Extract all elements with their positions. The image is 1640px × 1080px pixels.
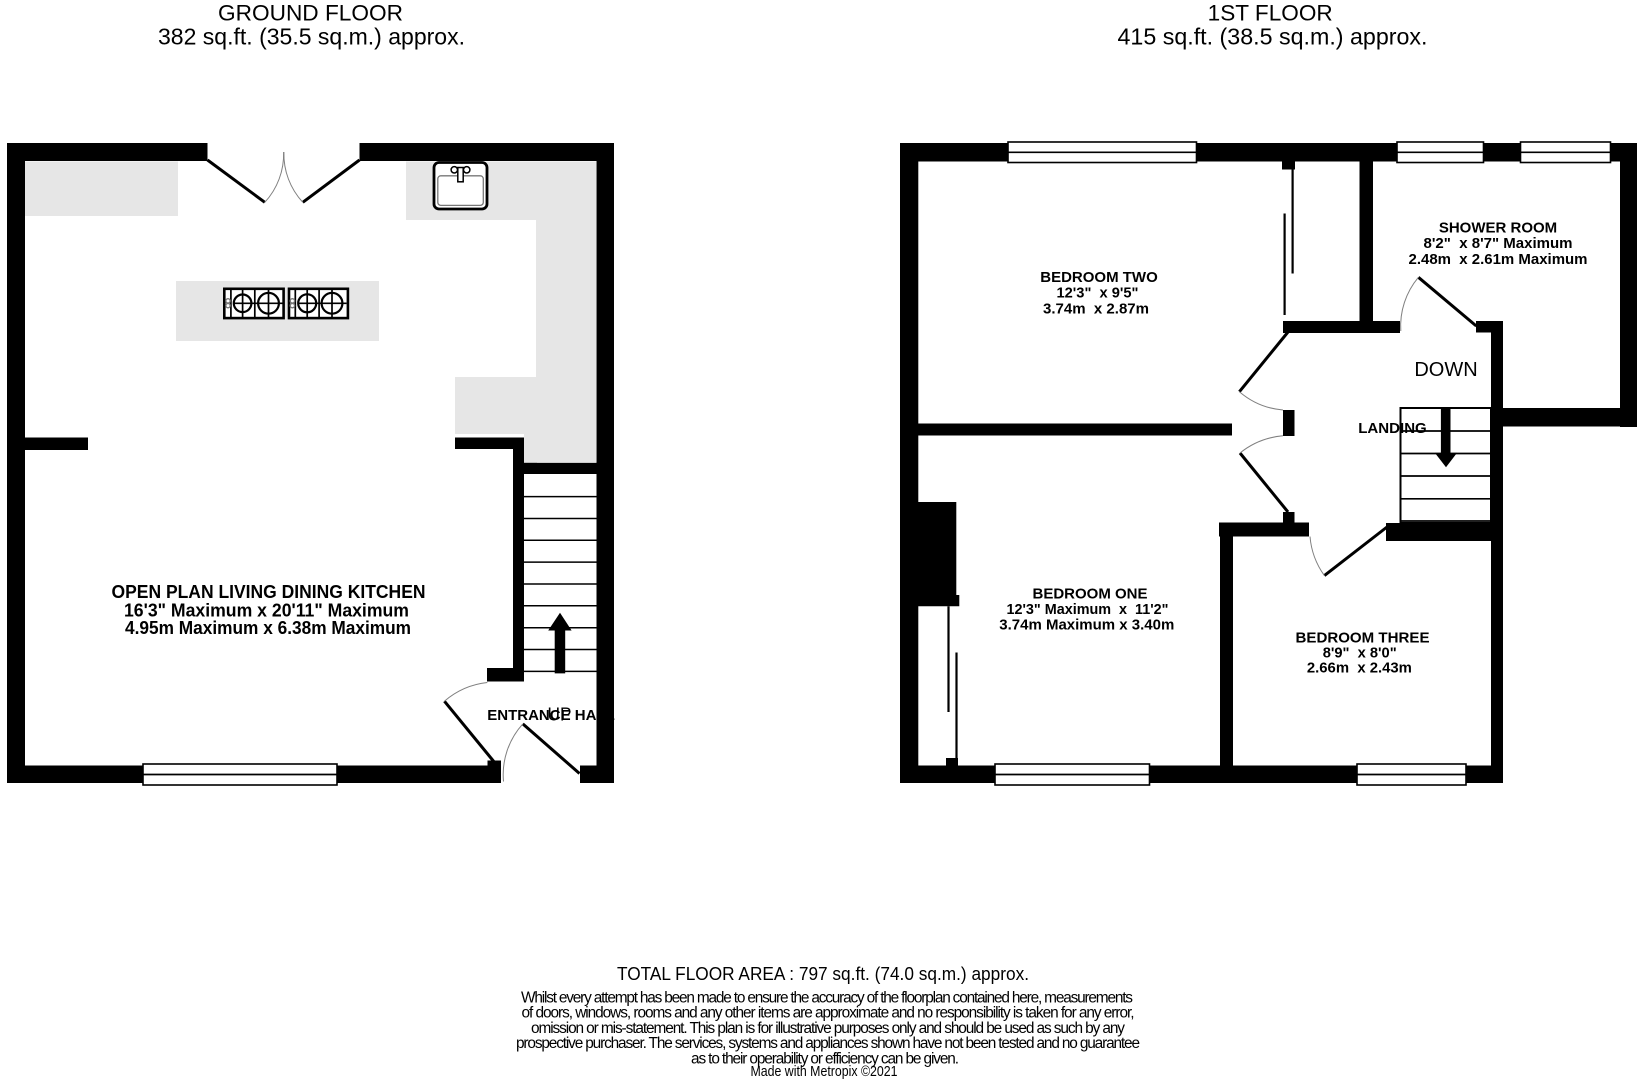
svg-text:DOWN: DOWN xyxy=(1414,359,1477,381)
svg-text:3.74m Maximum x 3.40m: 3.74m Maximum x 3.40m xyxy=(999,616,1174,633)
svg-text:2.48m x 2.61m Maximum: 2.48m x 2.61m Maximum xyxy=(1409,251,1588,268)
svg-text:GROUND FLOOR: GROUND FLOOR xyxy=(218,0,403,25)
svg-text:OPEN PLAN LIVING DINING KITCHE: OPEN PLAN LIVING DINING KITCHEN xyxy=(112,582,426,602)
svg-text:Made with Metropix ©2021: Made with Metropix ©2021 xyxy=(751,1063,898,1080)
svg-text:2.66m x 2.43m: 2.66m x 2.43m xyxy=(1307,659,1412,676)
svg-text:3.74m x 2.87m: 3.74m x 2.87m xyxy=(1043,300,1149,317)
svg-text:BEDROOM TWO: BEDROOM TWO xyxy=(1040,269,1158,286)
svg-text:LANDING: LANDING xyxy=(1358,420,1427,437)
svg-text:1ST FLOOR: 1ST FLOOR xyxy=(1208,0,1333,25)
svg-text:UP: UP xyxy=(548,704,572,724)
svg-text:415 sq.ft. (38.5 sq.m.) approx: 415 sq.ft. (38.5 sq.m.) approx. xyxy=(1118,24,1428,50)
svg-text:SHOWER ROOM: SHOWER ROOM xyxy=(1439,219,1557,236)
svg-text:TOTAL FLOOR AREA : 797 sq.ft.: TOTAL FLOOR AREA : 797 sq.ft. (74.0 sq.m… xyxy=(617,964,1029,984)
svg-text:12'3" x 9'5": 12'3" x 9'5" xyxy=(1057,285,1139,302)
svg-text:382 sq.ft. (35.5 sq.m.) approx: 382 sq.ft. (35.5 sq.m.) approx. xyxy=(158,24,465,50)
svg-text:8'2" x 8'7" Maximum: 8'2" x 8'7" Maximum xyxy=(1424,235,1573,252)
svg-text:4.95m Maximum x 6.38m Maximum: 4.95m Maximum x 6.38m Maximum xyxy=(125,618,411,638)
